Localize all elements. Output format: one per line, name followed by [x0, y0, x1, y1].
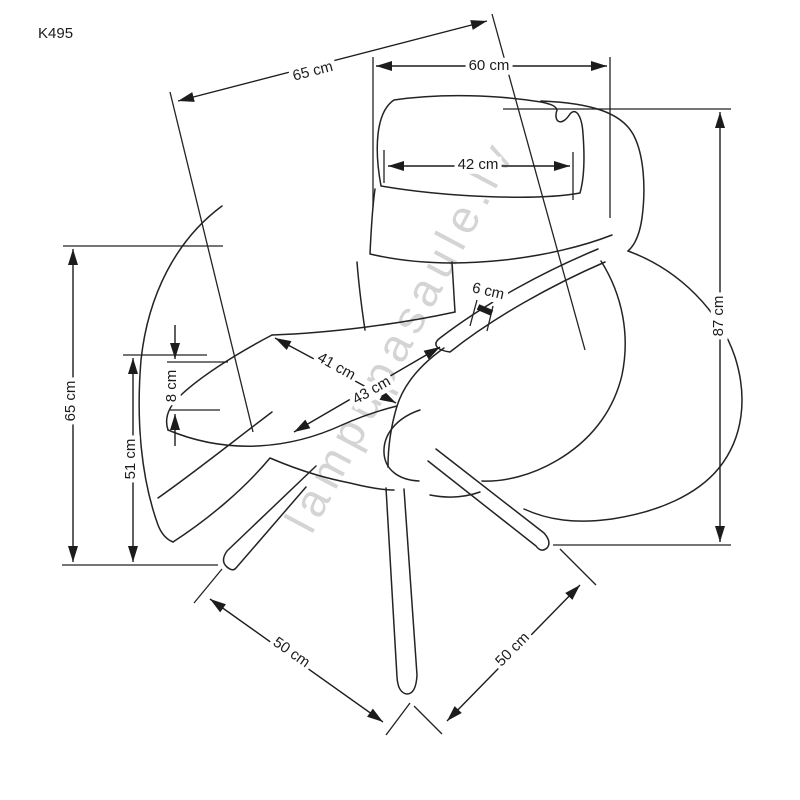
shell-bottom-left [173, 458, 394, 542]
dim-label-armrest-height: 65 cm [63, 378, 80, 425]
product-code-label: K495 [38, 26, 73, 43]
front-left-leg [224, 466, 317, 570]
tick-base-right-a [414, 706, 442, 734]
dim-label-seat-height: 51 cm [123, 436, 140, 483]
tick-base-left-a [194, 569, 222, 603]
dim-label-total-height: 87 cm [711, 293, 728, 340]
backrest-outer-edge [541, 101, 644, 251]
dim-label-cushion-thickness: 8 cm [164, 367, 181, 406]
tick-base-left-b [386, 703, 410, 735]
chair-dimension-drawing [0, 0, 800, 800]
ext-depth-left [170, 92, 253, 432]
tick-base-right-b [560, 549, 596, 585]
seat-left-edge [167, 335, 272, 430]
dim-label-headrest-width: 42 cm [455, 157, 502, 174]
technical-drawing-page: lampupasaule.lv [0, 0, 800, 800]
rear-right-leg [428, 449, 549, 550]
right-armrest-outer [524, 251, 742, 521]
armrest-top-edges [436, 249, 605, 352]
front-center-leg [386, 488, 417, 694]
dim-armrest-thickness [478, 307, 492, 313]
headrest-pillow [377, 96, 584, 198]
dim-label-top-width: 60 cm [466, 58, 513, 75]
chair-outline [139, 96, 742, 694]
seat-front-edge [168, 406, 397, 446]
